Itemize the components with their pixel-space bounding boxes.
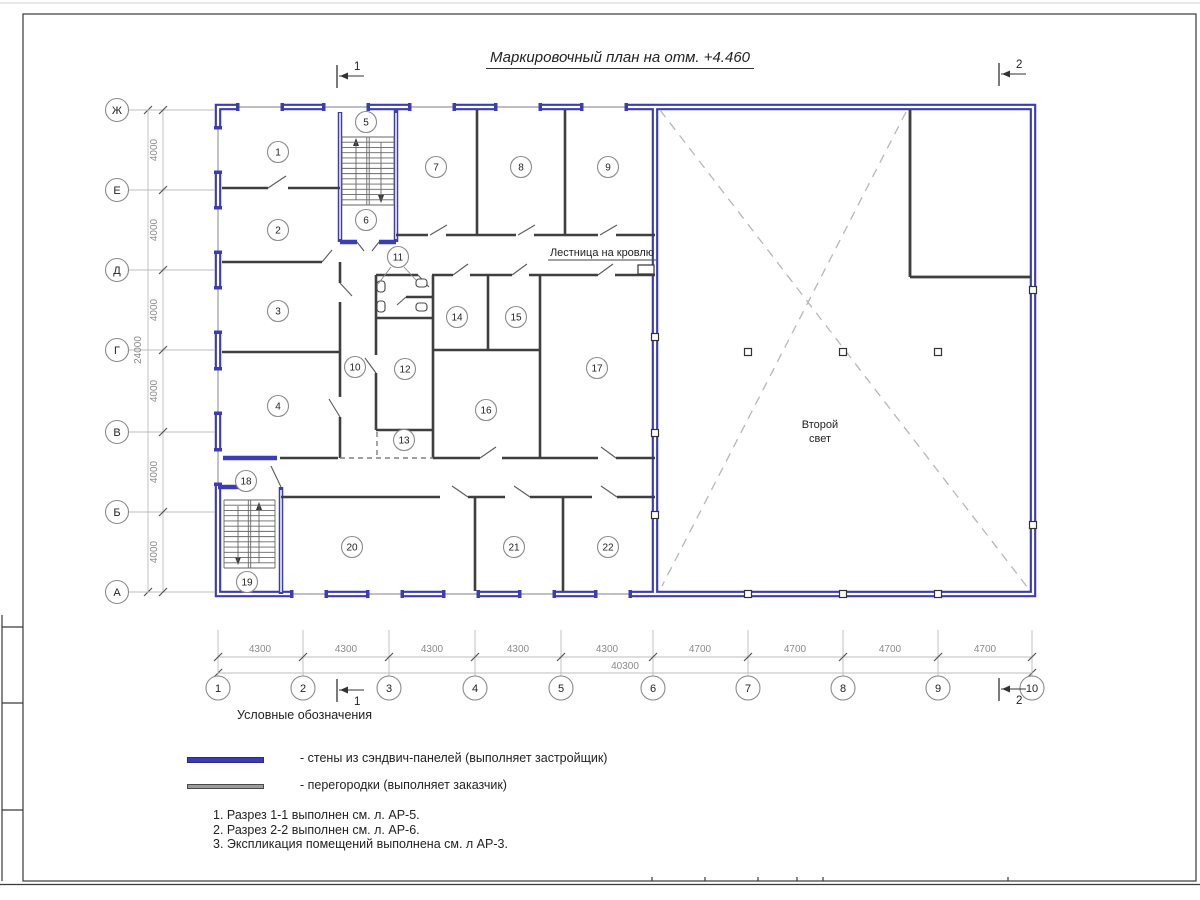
floor-plan-canvas: ЖЕДГВБА 12345678910 40004000400040004000… [0,0,1200,900]
col-dim-3: 4300 [507,644,530,655]
notes-block: 1. Разрез 1-1 выполнен см. л. АР-5. 2. Р… [213,808,508,852]
row-dim-5: 4000 [149,540,160,563]
drawing-sheet: ЖЕДГВБА 12345678910 40004000400040004000… [0,0,1200,900]
room-number-21: 21 [508,543,520,554]
row-axis-label-В: В [113,427,120,439]
room-number-20: 20 [346,543,358,554]
room-number-14: 14 [451,313,463,324]
col-axis-label-4: 4 [472,683,478,695]
row-axis-label-Ж: Ж [112,105,122,117]
legend-item-partition: - перегородки (выполняет заказчик) [300,778,507,792]
col-axis-label-6: 6 [650,683,656,695]
col-dim-total: 40300 [611,661,639,672]
windows [213,102,632,599]
room-number-7: 7 [433,163,439,174]
section-marks: 1212 [337,59,1026,708]
room-number-6: 6 [363,216,369,227]
drawing-title: Маркировочный план на отм. +4.460 [400,49,840,69]
room-number-5: 5 [363,118,369,129]
room-number-13: 13 [398,436,410,447]
section-mark-label-1-top: 1 [354,61,360,73]
room-number-22: 22 [602,543,614,554]
legend-swatch-sandwich-wall [187,757,264,763]
col-dim-5: 4700 [689,644,712,655]
col-axis-label-8: 8 [840,683,846,695]
col-axis-label-3: 3 [386,683,392,695]
col-dim-7: 4700 [879,644,902,655]
row-dim-2: 4000 [149,298,160,321]
col-axis-label-5: 5 [558,683,564,695]
legend-item-sandwich-wall: - стены из сэндвич-панелей (выполняет за… [300,751,607,765]
row-dim-total: 24000 [133,336,144,364]
mezzanine-room [910,110,1031,277]
room-number-17: 17 [591,364,603,375]
room-number-1: 1 [275,148,281,159]
row-axis-label-А: А [113,587,121,599]
room-number-11: 11 [393,253,404,264]
room-number-12: 12 [399,365,411,376]
row-axis-label-Е: Е [113,185,120,197]
room-number-15: 15 [510,313,522,324]
room-number-9: 9 [605,163,611,174]
row-axis-label-Д: Д [113,265,121,277]
col-axis-label-2: 2 [300,683,306,695]
room-number-16: 16 [480,406,492,417]
room-number-8: 8 [518,163,524,174]
room-number-2: 2 [275,226,281,237]
section-mark-label-2-top: 2 [1016,59,1022,71]
section-mark-label-2-bottom: 2 [1016,695,1022,707]
section-mark-label-1-bottom: 1 [354,696,360,708]
col-axis-label-1: 1 [215,683,221,695]
dashed-partitions [340,432,433,458]
wc-fixtures [377,279,427,312]
room-number-10: 10 [349,363,361,374]
second-light-label-line2: свет [809,433,831,445]
row-dim-1: 4000 [149,218,160,241]
col-dim-4: 4300 [596,644,619,655]
stairs-to-roof-label: Лестница на кровлю [550,247,654,259]
row-dim-3: 4000 [149,379,160,402]
note-2: 2. Разрез 2-2 выполнен см. л. АР-6. [213,823,508,838]
room-number-18: 18 [240,477,252,488]
room-number-4: 4 [275,402,281,413]
col-axis-label-9: 9 [935,683,941,695]
legend-heading: Условные обозначения [237,708,372,722]
note-3: 3. Экспликация помещений выполнена см. л… [213,837,508,852]
room-number-3: 3 [275,307,281,318]
row-axes: ЖЕДГВБА [106,99,216,604]
col-dim-8: 4700 [974,644,997,655]
second-light-label-line1: Второй [802,419,838,431]
row-dim-4: 4000 [149,460,160,483]
room-number-19: 19 [241,578,253,589]
row-axis-label-Г: Г [114,345,120,357]
row-dim-0: 4000 [149,138,160,161]
col-axis-label-7: 7 [745,683,751,695]
col-dim-2: 4300 [421,644,444,655]
row-axis-label-Б: Б [113,507,120,519]
column-markers [652,287,1037,598]
note-1: 1. Разрез 1-1 выполнен см. л. АР-5. [213,808,508,823]
col-dim-0: 4300 [249,644,272,655]
roof-ladder-icon [638,265,654,274]
col-axis-label-10: 10 [1026,683,1038,695]
col-dim-6: 4700 [784,644,807,655]
legend-swatch-partition [187,784,264,789]
col-dim-1: 4300 [335,644,358,655]
